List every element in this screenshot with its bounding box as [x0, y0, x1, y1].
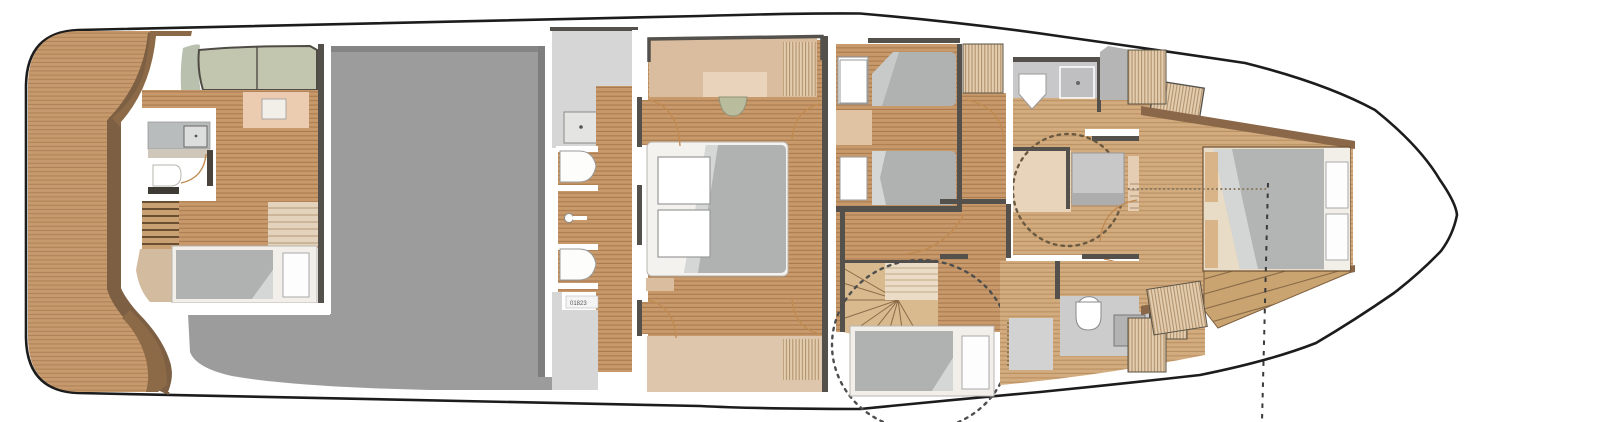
svg-text:01823: 01823 — [570, 301, 587, 307]
